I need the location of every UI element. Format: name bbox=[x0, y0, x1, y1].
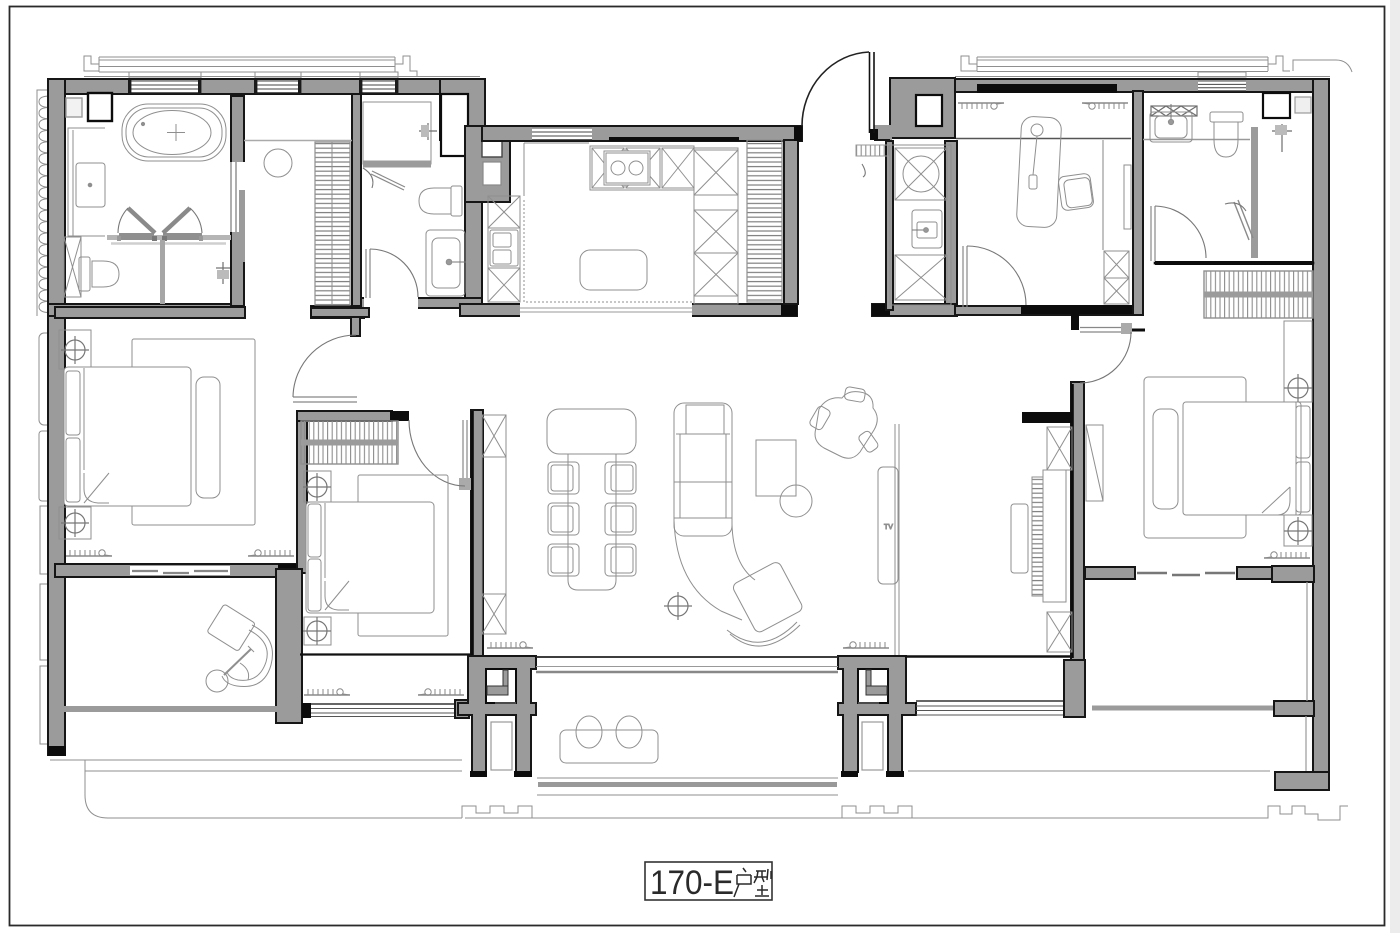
svg-text:170-E: 170-E bbox=[650, 864, 734, 902]
svg-text:TV: TV bbox=[884, 524, 893, 531]
